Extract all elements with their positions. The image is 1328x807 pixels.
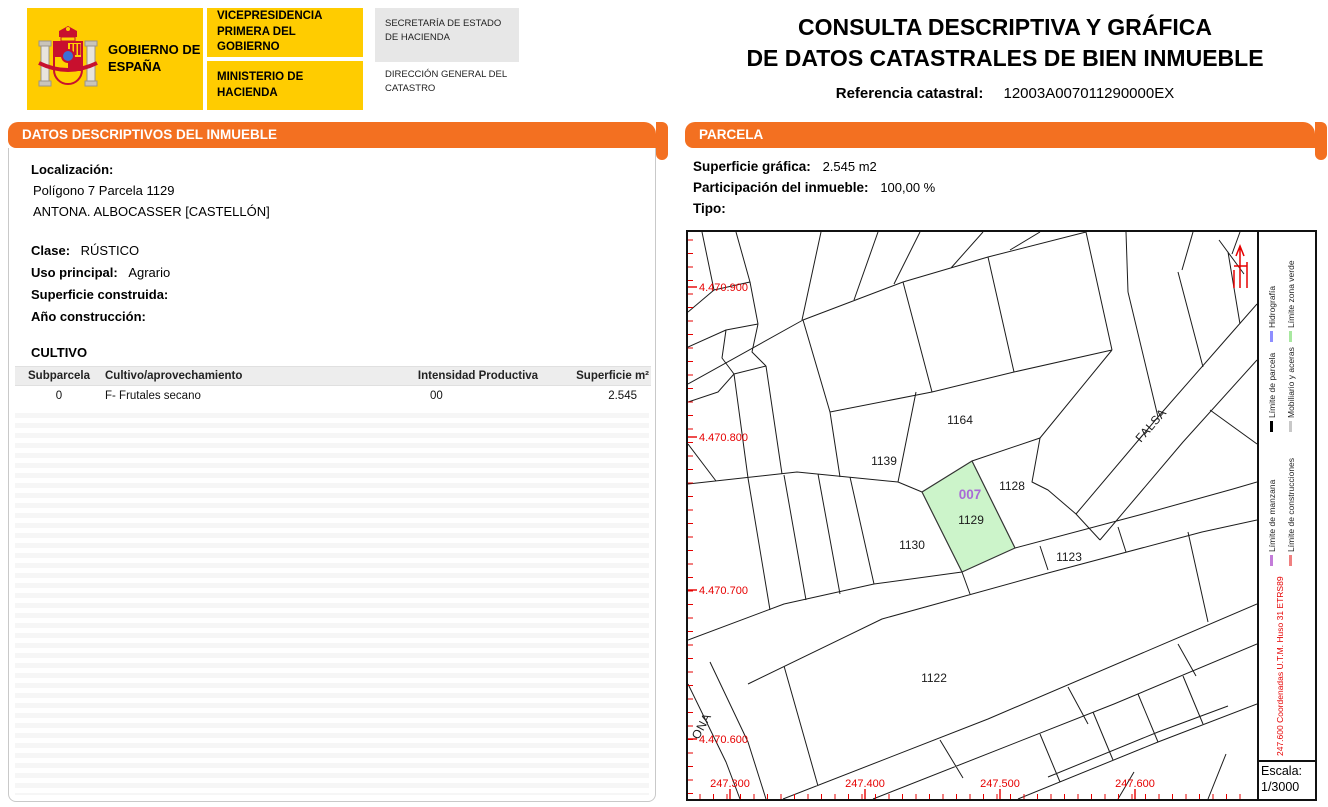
page-title-line2: DE DATOS CATASTRALES DE BIEN INMUEBLE — [690, 43, 1320, 74]
logo-left-section: GOBIERNO DE ESPAÑA — [27, 8, 203, 110]
cultivo-cell: 0 — [15, 386, 103, 405]
gobierno-de-espana-label: GOBIERNO DE ESPAÑA — [108, 42, 203, 76]
document-title-block: CONSULTA DESCRIPTIVA Y GRÁFICA DE DATOS … — [690, 12, 1320, 102]
svg-text:247.500: 247.500 — [980, 778, 1020, 790]
left-panel-title-bar: DATOS DESCRIPTIVOS DEL INMUEBLE — [8, 122, 656, 148]
svg-text:1164: 1164 — [947, 413, 973, 427]
anio-construccion-label: Año construcción: — [31, 309, 146, 324]
direccion-general-catastro-label: DIRECCIÓN GENERAL DEL CATASTRO — [375, 68, 519, 96]
col-header-intensidad: Intensidad Productiva — [398, 367, 558, 386]
scale-value: 1/3000 — [1261, 780, 1315, 796]
legend-color-dash-icon — [1270, 331, 1273, 342]
uso-principal-label: Uso principal: — [31, 265, 118, 280]
svg-text:247.400: 247.400 — [845, 778, 885, 790]
uso-principal-row: Uso principal: Agrario — [31, 265, 635, 280]
cultivo-table-header-row: Subparcela Cultivo/aprovechamiento Inten… — [15, 367, 651, 386]
localizacion-line1: Polígono 7 Parcela 1129 — [31, 183, 635, 198]
cultivo-table: Subparcela Cultivo/aprovechamiento Inten… — [15, 366, 651, 404]
legend-color-dash-icon — [1289, 555, 1292, 566]
svg-text:4.470.900: 4.470.900 — [699, 282, 748, 294]
cultivo-cell: 00 — [398, 386, 558, 405]
cultivo-section-title: CULTIVO — [31, 345, 655, 360]
legend-item: Límite de construcciones — [1286, 458, 1296, 566]
legend-item: Hidrografía — [1267, 286, 1277, 342]
superficie-grafica-row: Superficie gráfica: 2.545 m2 — [685, 156, 1322, 177]
legend-item: Límite de parcela — [1267, 353, 1277, 432]
legend-item-label: Límite de parcela — [1267, 353, 1277, 418]
clase-label: Clase: — [31, 243, 70, 258]
page-title-line1: CONSULTA DESCRIPTIVA Y GRÁFICA — [690, 12, 1320, 43]
legend-item-label: Límite de construcciones — [1286, 458, 1296, 552]
localizacion-label: Localización: — [31, 162, 635, 177]
page: { "colors":{ "accent_orange":"#F37021","… — [0, 0, 1328, 807]
tipo-label: Tipo: — [693, 201, 726, 216]
cadastral-reference-label: Referencia catastral: — [836, 85, 984, 102]
cultivo-cell: 2.545 — [558, 386, 651, 405]
anio-construccion-row: Año construcción: — [31, 309, 635, 324]
legend-color-dash-icon — [1270, 555, 1273, 566]
clase-row: Clase: RÚSTICO — [31, 243, 635, 258]
secretaria-de-estado-label: SECRETARÍA DE ESTADO DE HACIENDA — [375, 8, 519, 62]
cadastral-map[interactable]: 4.470.9004.470.8004.470.7004.470.600247.… — [688, 232, 1257, 799]
scale-label: Escala: — [1261, 764, 1315, 780]
col-header-cultivo: Cultivo/aprovechamiento — [103, 367, 398, 386]
legend-item: Límite de manzana — [1267, 480, 1277, 566]
scale-box: Escala: 1/3000 — [1259, 760, 1315, 799]
svg-text:4.470.700: 4.470.700 — [699, 585, 748, 597]
government-logo-block: GOBIERNO DE ESPAÑA VICEPRESIDENCIA PRIME… — [27, 8, 363, 110]
superficie-construida-label: Superficie construida: — [31, 287, 168, 302]
ministerio-label: MINISTERIO DE HACIENDA — [207, 61, 363, 110]
cultivo-cell: F- Frutales secano — [103, 386, 398, 405]
cultivo-table-row: 0F- Frutales secano002.545 — [15, 386, 651, 405]
participacion-value: 100,00 % — [880, 180, 935, 195]
legend-item-label: Límite de manzana — [1267, 480, 1277, 552]
legend-item: Límite zona verde — [1286, 260, 1296, 342]
clase-value: RÚSTICO — [81, 243, 140, 258]
svg-text:007: 007 — [959, 487, 982, 502]
svg-text:1129: 1129 — [958, 513, 984, 527]
spain-coat-of-arms-icon — [37, 25, 99, 93]
legend-item-label: Hidrografía — [1267, 286, 1277, 328]
col-header-superficie: Superficie m² — [558, 367, 651, 386]
uso-principal-value: Agrario — [128, 265, 170, 280]
utm-coordinates-note: 247.600 Coordenadas U.T.M. Huso 31 ETRS8… — [1275, 576, 1285, 756]
participacion-label: Participación del inmueble: — [693, 180, 869, 195]
svg-text:1128: 1128 — [999, 479, 1025, 493]
localizacion-line2: ANTONA. ALBOCASSER [CASTELLÓN] — [31, 204, 635, 219]
svg-text:1123: 1123 — [1056, 550, 1082, 564]
superficie-grafica-label: Superficie gráfica: — [693, 159, 811, 174]
legend-item-label: Límite zona verde — [1286, 260, 1296, 328]
svg-text:247.300: 247.300 — [710, 778, 750, 790]
parcela-panel-content: Superficie gráfica: 2.545 m2 Participaci… — [685, 156, 1322, 219]
cultivo-table-wrap: Subparcela Cultivo/aprovechamiento Inten… — [9, 366, 655, 404]
map-legend-strip: HidrografíaLímite zona verdeLímite de pa… — [1257, 232, 1315, 799]
right-panel-title-bar: PARCELA — [685, 122, 1315, 148]
vicepresidencia-label: VICEPRESIDENCIA PRIMERA DEL GOBIERNO — [207, 8, 363, 57]
legend-item-label: Mobiliario y aceras — [1286, 347, 1296, 418]
svg-text:4.470.800: 4.470.800 — [699, 432, 748, 444]
svg-text:247.600: 247.600 — [1115, 778, 1155, 790]
left-panel-content: Localización: Polígono 7 Parcela 1129 AN… — [9, 148, 655, 331]
legend-item: Mobiliario y aceras — [1286, 347, 1296, 432]
col-header-subparcela: Subparcela — [15, 367, 103, 386]
legend-color-dash-icon — [1289, 421, 1292, 432]
participacion-row: Participación del inmueble: 100,00 % — [685, 177, 1322, 198]
legend-color-dash-icon — [1270, 421, 1273, 432]
legend-color-dash-icon — [1289, 331, 1292, 342]
cadastral-reference-value: 12003A007011290000EX — [1004, 85, 1175, 102]
tipo-row: Tipo: — [685, 198, 1322, 219]
empty-table-rows-area — [15, 408, 649, 795]
cadastral-reference-line: Referencia catastral: 12003A007011290000… — [690, 85, 1320, 102]
svg-text:1139: 1139 — [871, 454, 897, 468]
svg-text:1130: 1130 — [899, 538, 925, 552]
svg-text:1122: 1122 — [921, 671, 947, 685]
superficie-construida-row: Superficie construida: — [31, 287, 635, 302]
datos-descriptivos-panel: Localización: Polígono 7 Parcela 1129 AN… — [8, 148, 656, 802]
cadastral-map-frame: 4.470.9004.470.8004.470.7004.470.600247.… — [686, 230, 1317, 801]
superficie-grafica-value: 2.545 m2 — [823, 159, 877, 174]
svg-text:4.470.600: 4.470.600 — [699, 734, 748, 746]
ministry-section: VICEPRESIDENCIA PRIMERA DEL GOBIERNO MIN… — [207, 8, 363, 110]
